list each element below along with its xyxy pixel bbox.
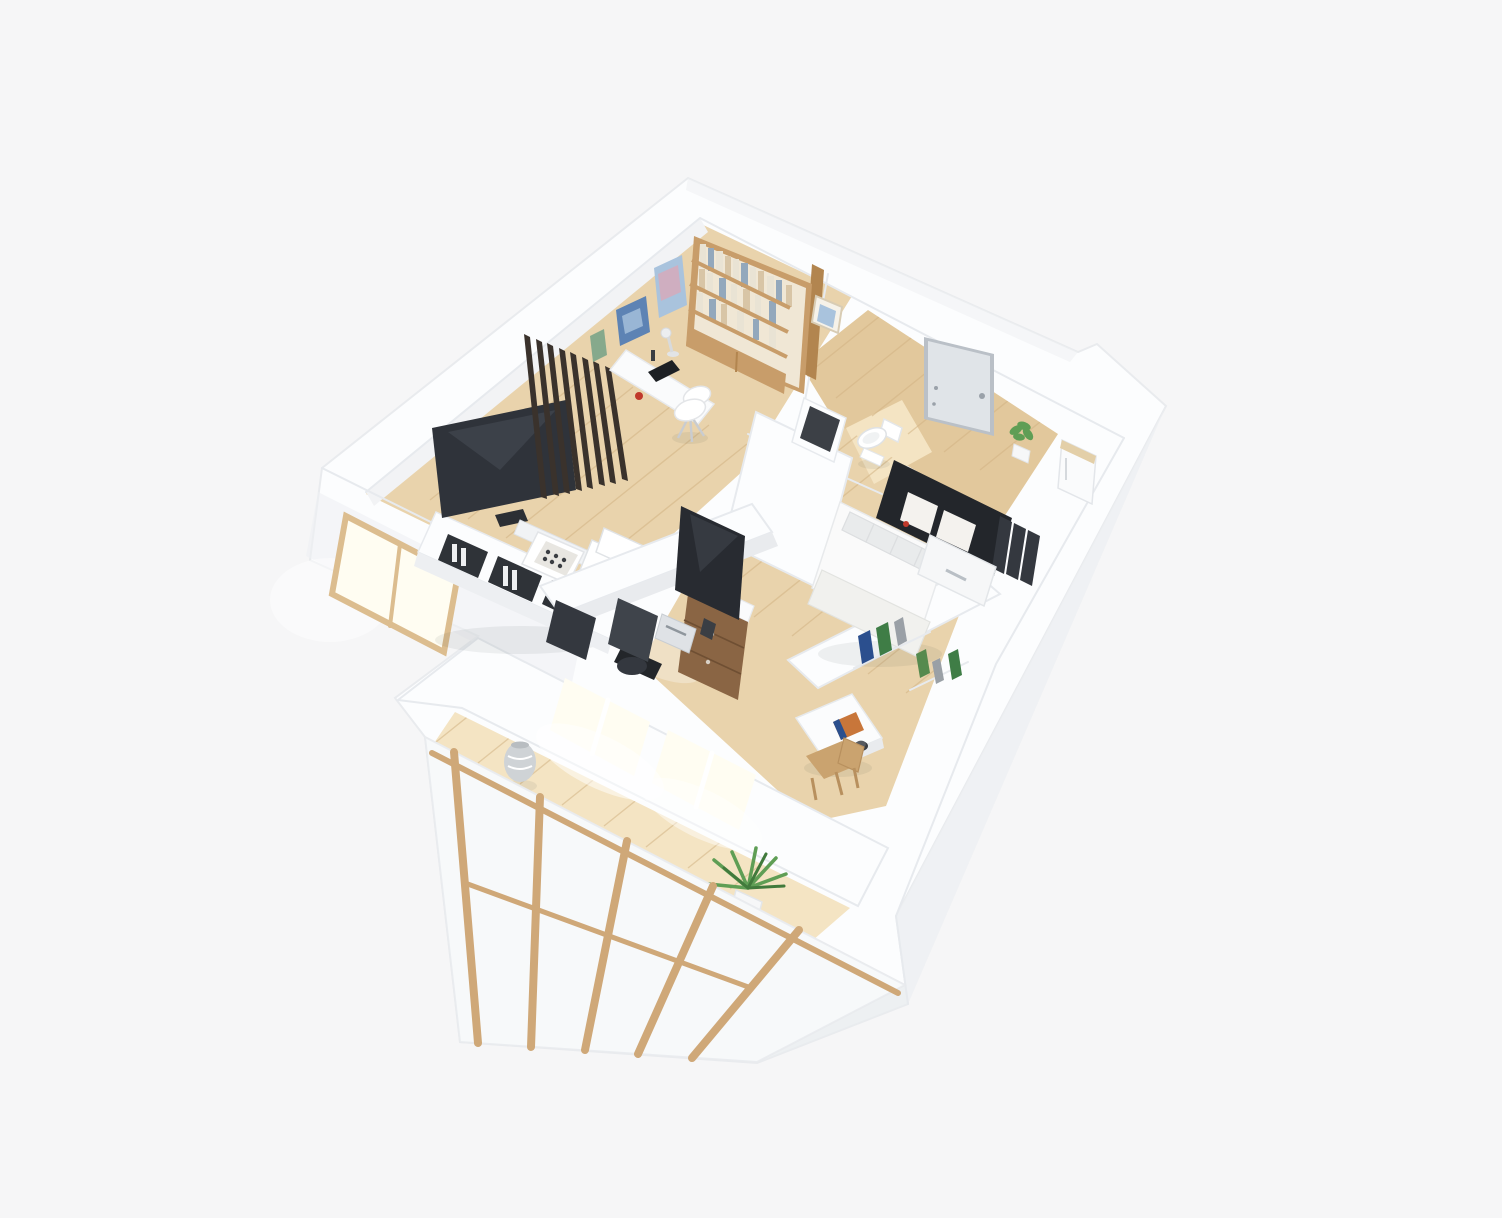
record-2 [461,548,466,566]
red-desk-item [635,392,643,400]
record-3 [503,566,508,586]
record-4 [512,570,517,590]
apartment-scene [0,0,1502,1218]
lamp-head [661,328,671,338]
office-chair-seat [617,657,647,675]
door-handle [979,393,985,399]
lamp-base [667,351,679,357]
cabinet-door-split [736,352,737,372]
record-1 [452,544,457,562]
front-door [924,337,994,436]
door-peephole [932,402,936,406]
floor-plan-render [0,0,1502,1218]
magazine-red-accent [903,521,909,527]
door-lock [934,386,938,390]
cabinet-knob-2 [706,660,710,664]
vase-mouth [511,742,529,749]
desk-figurine [651,350,655,361]
